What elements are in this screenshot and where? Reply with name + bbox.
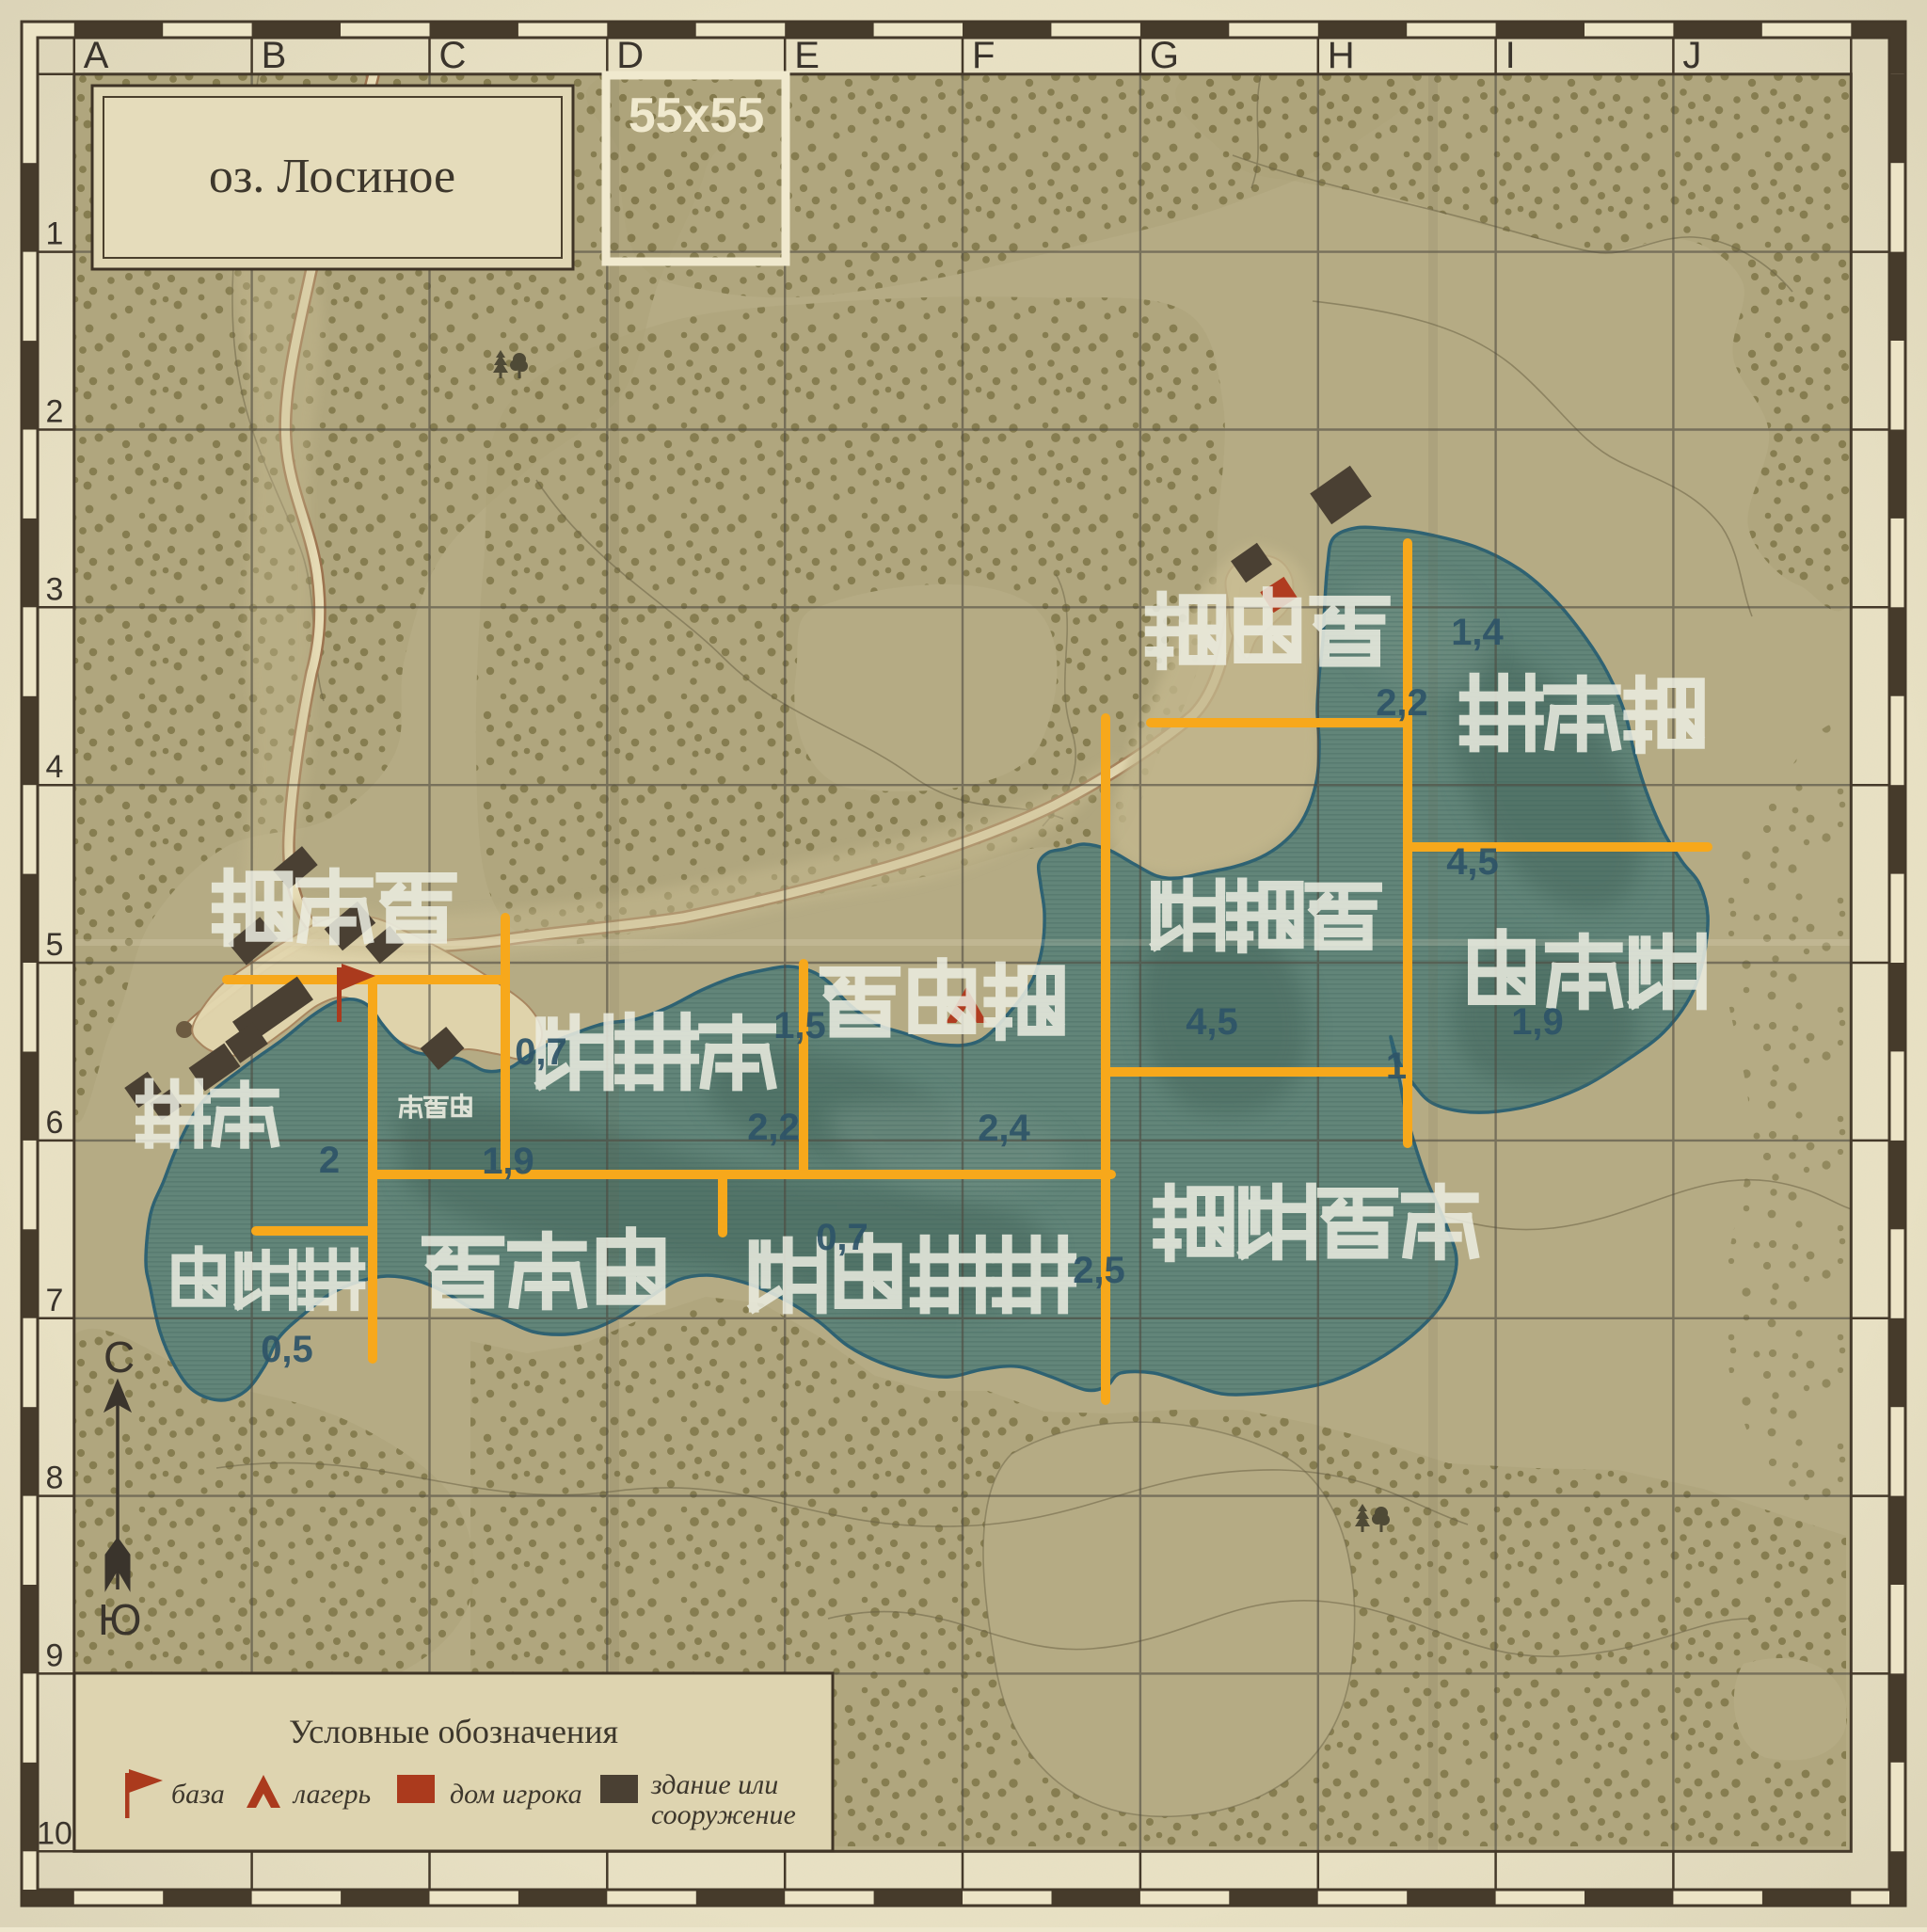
svg-text:0,7: 0,7 [816, 1217, 868, 1258]
svg-text:1,4: 1,4 [1451, 612, 1504, 653]
svg-text:1,9: 1,9 [482, 1141, 534, 1182]
svg-text:1,9: 1,9 [1511, 1001, 1564, 1043]
svg-text:8: 8 [46, 1461, 64, 1496]
svg-text:B: B [262, 35, 287, 76]
svg-text:Ю: Ю [98, 1595, 141, 1644]
svg-text:5: 5 [46, 927, 64, 963]
svg-text:9: 9 [46, 1637, 64, 1673]
svg-text:2,4: 2,4 [978, 1108, 1030, 1149]
svg-text:дом игрока: дом игрока [450, 1779, 582, 1810]
svg-text:I: I [1505, 35, 1516, 76]
svg-text:J: J [1682, 35, 1701, 76]
svg-text:D: D [616, 35, 644, 76]
svg-text:оз. Лосиное: оз. Лосиное [209, 150, 455, 203]
svg-text:4: 4 [46, 749, 64, 785]
svg-text:2: 2 [319, 1140, 340, 1181]
svg-text:4,5: 4,5 [1186, 1001, 1238, 1043]
svg-text:1: 1 [46, 216, 64, 252]
svg-text:2: 2 [46, 394, 64, 430]
svg-text:1: 1 [1386, 1046, 1407, 1087]
svg-text:C: C [439, 35, 467, 76]
svg-text:6: 6 [46, 1105, 64, 1141]
svg-text:0,7: 0,7 [515, 1031, 567, 1073]
svg-text:55x55: 55x55 [629, 88, 765, 143]
svg-text:3: 3 [46, 571, 64, 607]
svg-text:2,2: 2,2 [1376, 682, 1428, 724]
svg-text:E: E [794, 35, 820, 76]
svg-text:сооружение: сооружение [651, 1799, 796, 1830]
svg-text:Условные обозначения: Условные обозначения [289, 1713, 618, 1750]
svg-text:база: база [171, 1779, 225, 1810]
svg-text:здание или: здание или [650, 1769, 778, 1800]
svg-text:лагерь: лагерь [292, 1779, 371, 1810]
svg-text:H: H [1328, 35, 1355, 76]
svg-text:10: 10 [37, 1815, 72, 1851]
svg-text:0,5: 0,5 [261, 1329, 313, 1370]
svg-text:G: G [1150, 35, 1179, 76]
svg-text:2,2: 2,2 [747, 1107, 800, 1148]
svg-text:A: A [84, 35, 109, 76]
svg-text:2,5: 2,5 [1073, 1250, 1125, 1291]
svg-text:4,5: 4,5 [1446, 841, 1499, 883]
svg-text:F: F [972, 35, 995, 76]
svg-text:1,5: 1,5 [773, 1005, 826, 1046]
svg-text:7: 7 [46, 1283, 64, 1318]
svg-text:С: С [104, 1333, 135, 1381]
